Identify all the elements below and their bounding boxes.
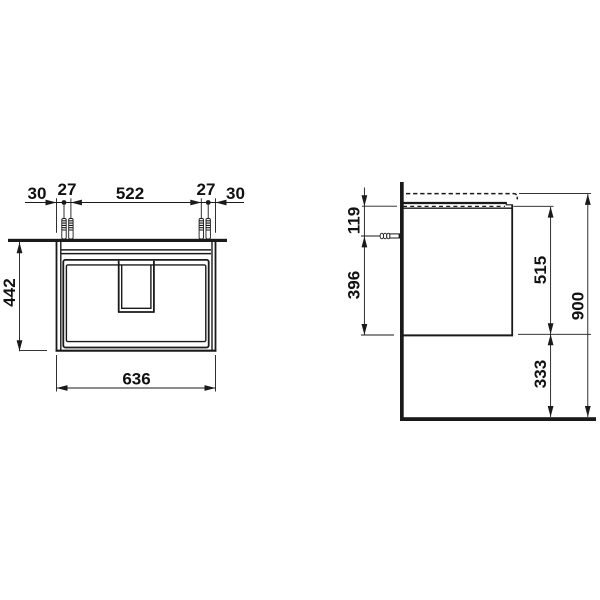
svg-text:119: 119 <box>345 207 364 234</box>
svg-text:333: 333 <box>531 360 550 388</box>
svg-text:27: 27 <box>58 180 77 199</box>
svg-text:27: 27 <box>197 180 216 199</box>
svg-text:30: 30 <box>28 184 47 203</box>
svg-text:636: 636 <box>122 370 150 389</box>
svg-text:396: 396 <box>345 271 364 299</box>
svg-text:900: 900 <box>569 292 588 320</box>
svg-text:515: 515 <box>531 256 550 284</box>
svg-text:30: 30 <box>226 184 245 203</box>
svg-text:442: 442 <box>0 278 19 306</box>
svg-text:522: 522 <box>116 184 144 203</box>
